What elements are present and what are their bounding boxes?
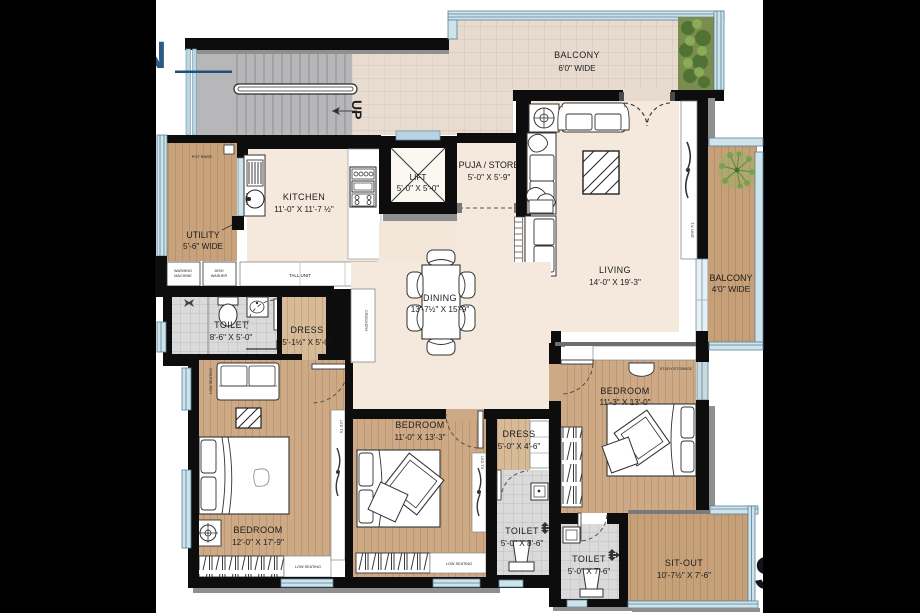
svg-text:SIT-OUT: SIT-OUT — [665, 558, 703, 568]
svg-text:KITCHEN: KITCHEN — [283, 192, 325, 202]
svg-text:DRESS: DRESS — [502, 429, 535, 439]
svg-text:STUDY/STORAGE: STUDY/STORAGE — [660, 367, 693, 371]
svg-text:TOILET: TOILET — [505, 526, 539, 536]
svg-text:BALCONY: BALCONY — [709, 273, 752, 283]
svg-text:5'-6" WIDE: 5'-6" WIDE — [183, 242, 223, 251]
svg-text:CROCKERY: CROCKERY — [364, 310, 368, 332]
svg-text:10'-7½" X 7'-6": 10'-7½" X 7'-6" — [657, 571, 711, 580]
svg-text:5'-0" X 4'-6": 5'-0" X 4'-6" — [498, 442, 541, 451]
svg-text:LOW SEATING: LOW SEATING — [295, 565, 321, 569]
svg-text:LIFT: LIFT — [410, 173, 427, 182]
svg-text:UP: UP — [349, 100, 365, 119]
svg-text:4'0" WIDE: 4'0" WIDE — [712, 284, 751, 294]
svg-text:5'-0" X 8'-6": 5'-0" X 8'-6" — [501, 539, 544, 548]
svg-text:WASHER: WASHER — [211, 274, 228, 278]
svg-text:12'-0" X 17'-9": 12'-0" X 17'-9" — [232, 538, 284, 547]
svg-text:8'-6" X 5'-0": 8'-6" X 5'-0" — [210, 333, 253, 342]
svg-text:LOW SEATING: LOW SEATING — [209, 368, 213, 394]
svg-text:WASHING: WASHING — [174, 269, 192, 273]
svg-text:6'0" WIDE: 6'0" WIDE — [558, 64, 596, 73]
svg-text:TOILET: TOILET — [572, 554, 606, 564]
svg-text:11'-0" X 11'-7 ½": 11'-0" X 11'-7 ½" — [274, 205, 334, 214]
svg-text:LED TV: LED TV — [339, 420, 343, 434]
svg-text:MACHINE: MACHINE — [174, 274, 192, 278]
svg-text:5'-1½" X 5'-0": 5'-1½" X 5'-0" — [282, 338, 332, 347]
svg-text:TALL UNIT: TALL UNIT — [289, 273, 311, 278]
svg-text:5'-0" X 5'-0": 5'-0" X 5'-0" — [397, 184, 440, 193]
svg-text:BALCONY: BALCONY — [554, 50, 600, 60]
svg-text:UTILITY: UTILITY — [186, 230, 220, 240]
svg-text:11'-3" X 13'-0": 11'-3" X 13'-0" — [599, 398, 650, 407]
svg-text:14'-0" X 19'-3": 14'-0" X 19'-3" — [589, 278, 641, 287]
svg-text:BEDROOM: BEDROOM — [600, 386, 649, 396]
svg-text:LIVING: LIVING — [599, 265, 631, 275]
svg-text:POT RAISE: POT RAISE — [192, 155, 213, 159]
svg-text:LOW SEATING: LOW SEATING — [446, 562, 472, 566]
svg-text:LED TV: LED TV — [480, 456, 484, 470]
svg-text:BEDROOM: BEDROOM — [233, 525, 282, 535]
svg-text:5'-0" X 7'-6": 5'-0" X 7'-6" — [568, 567, 611, 576]
svg-text:13'-7½" X 15'-9": 13'-7½" X 15'-9" — [411, 305, 470, 314]
svg-text:BEDROOM: BEDROOM — [395, 420, 444, 430]
svg-text:11'-0" X 13'-3": 11'-0" X 13'-3" — [394, 433, 445, 442]
svg-text:TOILET: TOILET — [214, 320, 248, 330]
svg-text:DRESS: DRESS — [290, 325, 323, 335]
svg-text:PUJA / STORE: PUJA / STORE — [459, 160, 520, 170]
svg-text:DISH: DISH — [214, 269, 223, 273]
svg-text:DINING: DINING — [423, 293, 457, 303]
svg-text:T.V. UNIT: T.V. UNIT — [690, 222, 694, 239]
svg-text:5'-0" X 5'-9": 5'-0" X 5'-9" — [468, 173, 511, 182]
